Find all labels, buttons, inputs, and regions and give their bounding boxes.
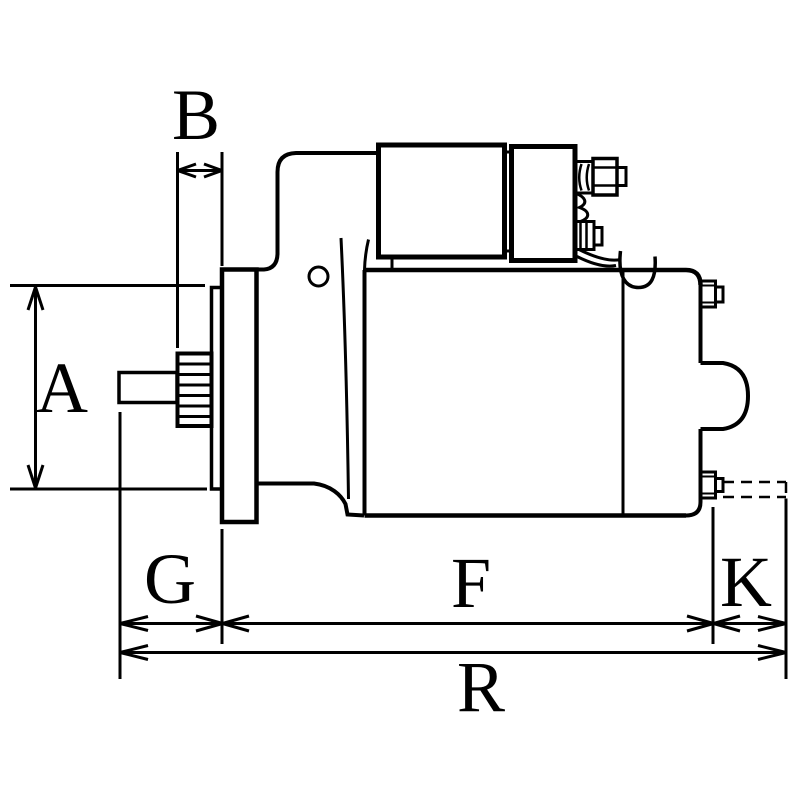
housing-seam-line-left — [341, 238, 349, 499]
mounting-flange — [222, 270, 257, 523]
terminal-bolt-lower-right — [701, 472, 724, 498]
terminal-tip — [594, 228, 602, 246]
bolt-stud — [716, 287, 724, 302]
drawing-canvas: B A G F K R — [0, 0, 800, 800]
bolt-washer-lines — [701, 286, 716, 303]
solenoid-cap — [512, 147, 576, 261]
pinion-shaft — [119, 373, 177, 403]
dim-label-g: G — [144, 539, 196, 619]
solenoid-body — [379, 145, 505, 257]
dim-label-r: R — [457, 647, 505, 727]
dim-label-a: A — [36, 348, 88, 428]
solenoid-terminal-lower — [575, 222, 602, 250]
solenoid-terminal-upper — [575, 159, 626, 196]
motor-yoke — [365, 270, 701, 516]
terminal-washer-curves — [579, 164, 589, 191]
solenoid — [379, 145, 588, 270]
housing-bolt-hole — [309, 267, 328, 286]
terminal-body — [575, 222, 594, 250]
dimension-b — [178, 152, 223, 348]
hidden-through-bolt — [723, 482, 786, 497]
terminal-bolt-upper-right — [701, 281, 724, 307]
yoke-right-edge-lower — [686, 429, 701, 516]
pinion-gear — [178, 354, 212, 427]
bolt-stud — [716, 479, 724, 492]
rear-bearing-boss — [701, 363, 749, 429]
starter-motor-dimension-drawing: B A G F K R — [0, 0, 800, 800]
terminal-nut — [593, 159, 617, 196]
dimension-r — [120, 646, 786, 660]
bolt-washer-lines — [701, 477, 716, 494]
drive-housing-top-profile — [257, 153, 379, 270]
drive-housing — [257, 153, 379, 516]
pinion-gear-teeth — [178, 364, 212, 417]
dim-label-f: F — [451, 543, 491, 623]
terminal-body-lines — [581, 222, 587, 250]
dim-label-k: K — [720, 542, 772, 622]
wire-upper-line — [579, 250, 621, 261]
terminal-stud-tip — [617, 168, 626, 186]
terminal-nut-lines — [593, 168, 617, 186]
terminal-washer — [575, 162, 593, 194]
dim-label-b: B — [172, 75, 220, 155]
housing-seam-line-right — [365, 240, 369, 271]
